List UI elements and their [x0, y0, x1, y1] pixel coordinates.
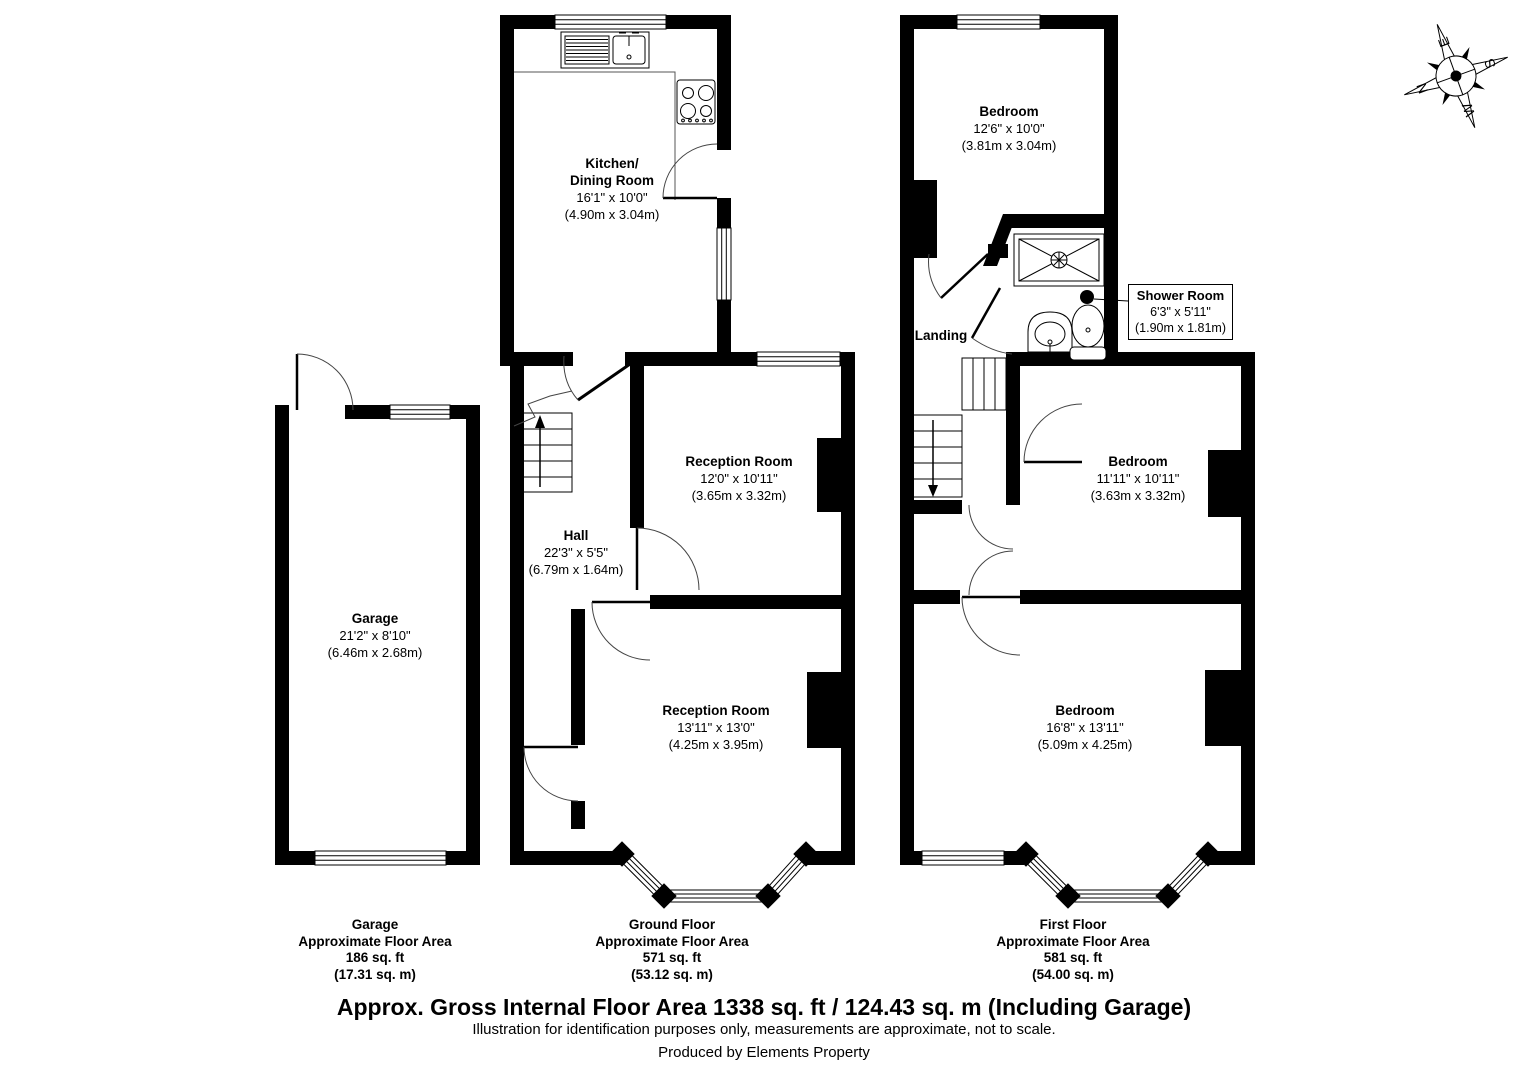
room-label-bedroom-mid: Bedroom 11'11" x 10'11" (3.63m x 3.32m) — [1091, 453, 1186, 504]
room-label-garage: Garage 21'2" x 8'10" (6.46m x 2.68m) — [328, 610, 423, 661]
compass-north-label: N — [1413, 81, 1431, 96]
bedroom-mid-door-arc — [1024, 404, 1082, 462]
floorplan-drawing: N E S W — [0, 0, 1528, 1080]
shower-tray-icon — [1014, 234, 1104, 286]
floorplan-page: N E S W Kitchen/ Dining Room 16'1" x 10'… — [0, 0, 1528, 1080]
garage-area-summary: Garage Approximate Floor Area 186 sq. ft… — [298, 917, 451, 983]
landing-door-arc — [929, 254, 989, 298]
first-floor-plan — [900, 15, 1255, 909]
kitchen-door-arc — [663, 144, 717, 198]
first-stairs-icon — [905, 358, 1006, 497]
kitchen-sink-icon — [561, 32, 649, 68]
room-label-kitchen: Kitchen/ Dining Room 16'1" x 10'0" (4.90… — [565, 155, 660, 223]
ground-bay-window — [609, 841, 818, 908]
shower-door-arc — [972, 288, 1012, 354]
bedroom-bottom-door-arc — [962, 597, 1020, 655]
shower-room-callout: Shower Room 6'3" x 5'11" (1.90m x 1.81m) — [1128, 284, 1233, 340]
toilet-icon — [1070, 305, 1106, 360]
kitchen-top-window — [555, 15, 666, 29]
first-bottom-window — [922, 851, 1004, 865]
kitchen-side-window — [717, 228, 731, 300]
first-bay-window — [1013, 841, 1220, 908]
garage-top-window — [390, 405, 450, 419]
compass-south-label: S — [1481, 57, 1499, 71]
first-top-window — [957, 15, 1040, 29]
landing-double-door-arcs — [969, 505, 1013, 595]
compass-icon: N E S W — [1386, 6, 1527, 147]
gross-area-title: Approx. Gross Internal Floor Area 1338 s… — [0, 994, 1528, 1021]
hall-reception-door-arc — [637, 528, 699, 590]
room-label-landing: Landing — [915, 327, 968, 344]
garage-bottom-window — [315, 851, 446, 865]
credit-text: Produced by Elements Property — [0, 1044, 1528, 1061]
room-label-bedroom-bottom: Bedroom 16'8" x 13'11" (5.09m x 4.25m) — [1038, 702, 1133, 753]
first-floor-area-summary: First Floor Approximate Floor Area 581 s… — [996, 917, 1149, 983]
room-label-reception-2: Reception Room 13'11" x 13'0" (4.25m x 3… — [662, 702, 769, 753]
hob-icon — [677, 80, 715, 124]
room-label-hall: Hall 22'3" x 5'5" (6.79m x 1.64m) — [529, 527, 624, 578]
basin-icon — [1028, 312, 1072, 352]
room-label-bedroom-top: Bedroom 12'6" x 10'0" (3.81m x 3.04m) — [962, 103, 1057, 154]
ground-floor-plan — [500, 15, 855, 909]
shower-callout-dot — [1080, 290, 1094, 304]
reception-top-window — [757, 352, 840, 366]
room-label-reception-1: Reception Room 12'0" x 10'11" (3.65m x 3… — [685, 453, 792, 504]
ground-floor-area-summary: Ground Floor Approximate Floor Area 571 … — [595, 917, 748, 983]
garage-door-arc — [297, 354, 353, 410]
hall-bottom-door-arc — [524, 747, 578, 801]
front-door-arc — [564, 356, 633, 400]
disclaimer-text: Illustration for identification purposes… — [0, 1021, 1528, 1038]
reception-reception-door-arc — [592, 602, 650, 660]
